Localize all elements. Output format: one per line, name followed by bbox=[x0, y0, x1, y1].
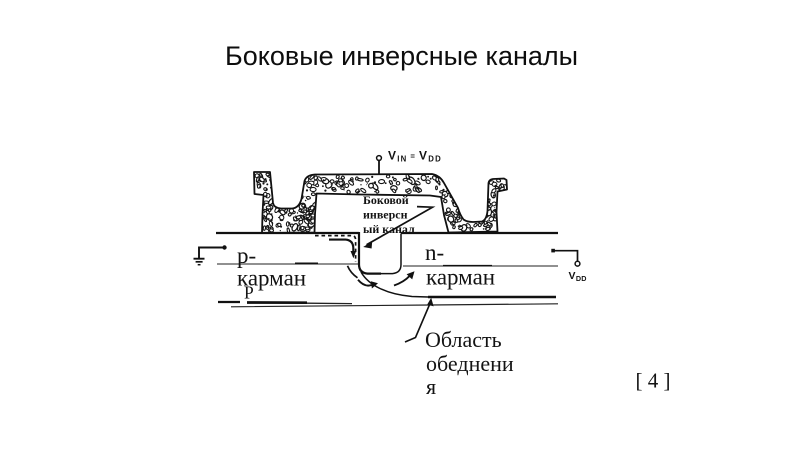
svg-text:Область: Область bbox=[425, 327, 502, 352]
svg-text:VIN = VDD: VIN = VDD bbox=[388, 149, 442, 164]
svg-text:Р: Р bbox=[244, 283, 254, 303]
svg-text:обеднени: обеднени bbox=[426, 351, 514, 376]
svg-text:p-: p- bbox=[237, 243, 256, 268]
svg-text:n-: n- bbox=[425, 240, 444, 265]
svg-text:инверсн: инверсн bbox=[363, 208, 408, 222]
svg-text:[ 4 ]: [ 4 ] bbox=[636, 369, 671, 393]
svg-text:ый канал: ый канал bbox=[363, 222, 415, 236]
svg-text:я: я bbox=[426, 374, 436, 399]
svg-text:VDD: VDD bbox=[569, 270, 587, 283]
svg-text:Боковой: Боковой bbox=[363, 193, 409, 207]
svg-text:карман: карман bbox=[426, 265, 495, 290]
